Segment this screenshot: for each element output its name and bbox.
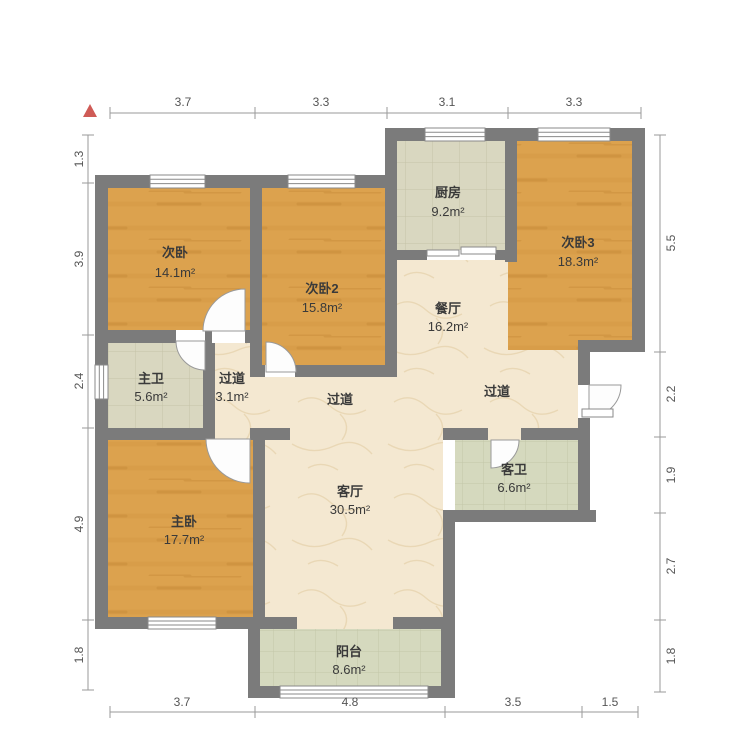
north-arrow-icon — [83, 104, 97, 117]
dim-bottom-0: 3.7 — [174, 695, 191, 709]
wall-bedroom-a-bottom-stub — [205, 330, 212, 343]
dim-top-2: 3.1 — [439, 95, 456, 109]
room-label-guest-bath: 客卫 — [501, 462, 527, 477]
room-area-guest-bath: 6.6m² — [497, 480, 531, 495]
room-label-master-bedroom: 主卧 — [171, 514, 197, 529]
window-bedroom-c — [538, 128, 610, 141]
dim-left-1: 3.9 — [72, 250, 86, 267]
wall-master-living — [253, 428, 265, 617]
dim-right-3: 2.7 — [664, 557, 678, 574]
dim-right-4: 1.8 — [664, 647, 678, 664]
room-area-dining: 16.2m² — [428, 319, 469, 334]
room-area-hallway-small: 3.1m² — [215, 389, 249, 404]
room-label-living: 客厅 — [337, 484, 363, 499]
room-label-master-bath: 主卫 — [138, 371, 164, 386]
room-label-hallway-east: 过道 — [484, 384, 510, 399]
window-bedroom-a — [150, 175, 205, 188]
room-label-bedroom-a: 次卧 — [162, 245, 188, 260]
dim-top-3: 3.3 — [566, 95, 583, 109]
wall-kitchen-bottom-a — [385, 250, 427, 260]
wall-right-upper — [632, 128, 645, 352]
room-label-bedroom-b: 次卧2 — [305, 281, 338, 296]
dim-left-3: 4.9 — [72, 515, 86, 532]
window-kitchen — [425, 128, 485, 141]
dim-right-0: 5.5 — [664, 234, 678, 251]
balcony-opening-floor — [297, 617, 393, 629]
room-label-kitchen: 厨房 — [435, 185, 461, 200]
wall-kitchen-right — [505, 128, 517, 262]
dim-left-0: 1.3 — [72, 150, 86, 167]
room-label-hallway-mid: 过道 — [327, 392, 353, 407]
floor-plan-svg: 次卧 14.1m² 次卧2 15.8m² 厨房 9.2m² 次卧3 18.3m²… — [0, 0, 750, 750]
window-master-bath — [95, 365, 108, 399]
wall-entry-above — [578, 340, 590, 385]
kitchen-slider-panel-a — [427, 250, 459, 256]
dim-bottom-2: 3.5 — [505, 695, 522, 709]
floors — [108, 141, 632, 686]
wall-balcony-left — [248, 617, 260, 698]
room-area-balcony: 8.6m² — [332, 662, 366, 677]
dim-bottom-3: 1.5 — [602, 695, 619, 709]
room-floor-hallway-east — [508, 350, 578, 428]
room-area-master-bedroom: 17.7m² — [164, 532, 205, 547]
dimension-right: 5.5 2.2 1.9 2.7 1.8 — [654, 135, 678, 692]
room-floor-living — [265, 428, 443, 617]
wall-guest-bath-bottom — [443, 510, 596, 522]
entrance-door-sill — [582, 409, 613, 417]
wall-balcony-right — [441, 617, 455, 698]
wall-kitchen-left — [385, 188, 397, 377]
kitchen-slider-panel-b — [461, 247, 496, 254]
window-bedroom-b — [288, 175, 355, 188]
room-label-balcony: 阳台 — [336, 644, 362, 659]
dim-left-2: 2.4 — [72, 372, 86, 389]
window-master-bedroom — [148, 617, 216, 629]
wall-bedroom-a-bottom-a — [95, 330, 176, 343]
dim-right-2: 1.9 — [664, 466, 678, 483]
room-label-dining: 餐厅 — [434, 301, 461, 316]
wall-master-bedroom-top-a — [95, 428, 205, 440]
dim-bottom-1: 4.8 — [342, 695, 359, 709]
dim-top-0: 3.7 — [175, 95, 192, 109]
wall-bedroom-a-bottom-b — [245, 330, 262, 343]
dim-top-1: 3.3 — [313, 95, 330, 109]
room-area-bedroom-c: 18.3m² — [558, 254, 599, 269]
room-area-kitchen: 9.2m² — [431, 204, 465, 219]
wall-guest-bath-top-b — [521, 428, 590, 440]
room-label-hallway-small: 过道 — [219, 371, 245, 386]
wall-living-right — [443, 522, 455, 629]
dimension-top: 3.7 3.3 3.1 3.3 — [110, 95, 641, 119]
wall-bedroom-b-bottom-a — [250, 365, 265, 377]
room-floor-bedroom-b — [262, 188, 385, 365]
dimension-left: 1.3 3.9 2.4 4.9 1.8 — [72, 135, 94, 690]
wall-guest-bath-top-a — [443, 428, 488, 440]
room-area-living: 30.5m² — [330, 502, 371, 517]
wall-left — [95, 175, 108, 629]
wall-bedroom-b-bottom-b — [295, 365, 397, 377]
floor-plan-canvas: 次卧 14.1m² 次卧2 15.8m² 厨房 9.2m² 次卧3 18.3m²… — [0, 0, 750, 750]
room-area-bedroom-a: 14.1m² — [155, 265, 196, 280]
dim-left-4: 1.8 — [72, 646, 86, 663]
room-label-bedroom-c: 次卧3 — [561, 235, 594, 250]
room-area-master-bath: 5.6m² — [134, 389, 168, 404]
room-area-bedroom-b: 15.8m² — [302, 300, 343, 315]
dim-right-1: 2.2 — [664, 385, 678, 402]
